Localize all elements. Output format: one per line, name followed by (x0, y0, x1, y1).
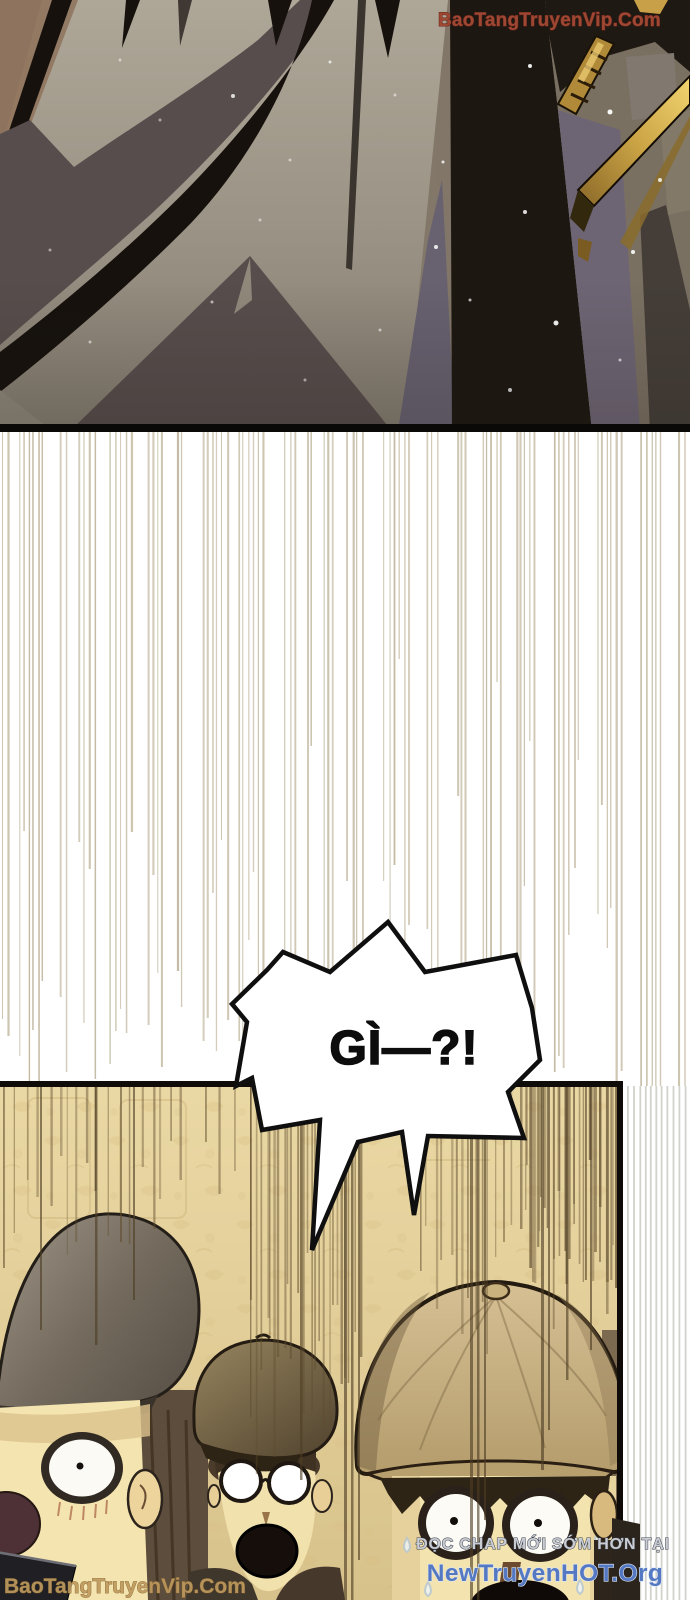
svg-text:ĐỌC CHAP MỚI SỚM HƠN TẠI: ĐỌC CHAP MỚI SỚM HƠN TẠI (416, 1534, 670, 1553)
svg-text:BaoTangTruyenVip.Com: BaoTangTruyenVip.Com (4, 1575, 246, 1598)
svg-text:NewTruyenHOT.Org: NewTruyenHOT.Org (427, 1560, 663, 1587)
svg-text:BaoTangTruyenVip.Com: BaoTangTruyenVip.Com (438, 10, 661, 31)
svg-text:GÌ—?!: GÌ—?! (330, 1021, 479, 1075)
